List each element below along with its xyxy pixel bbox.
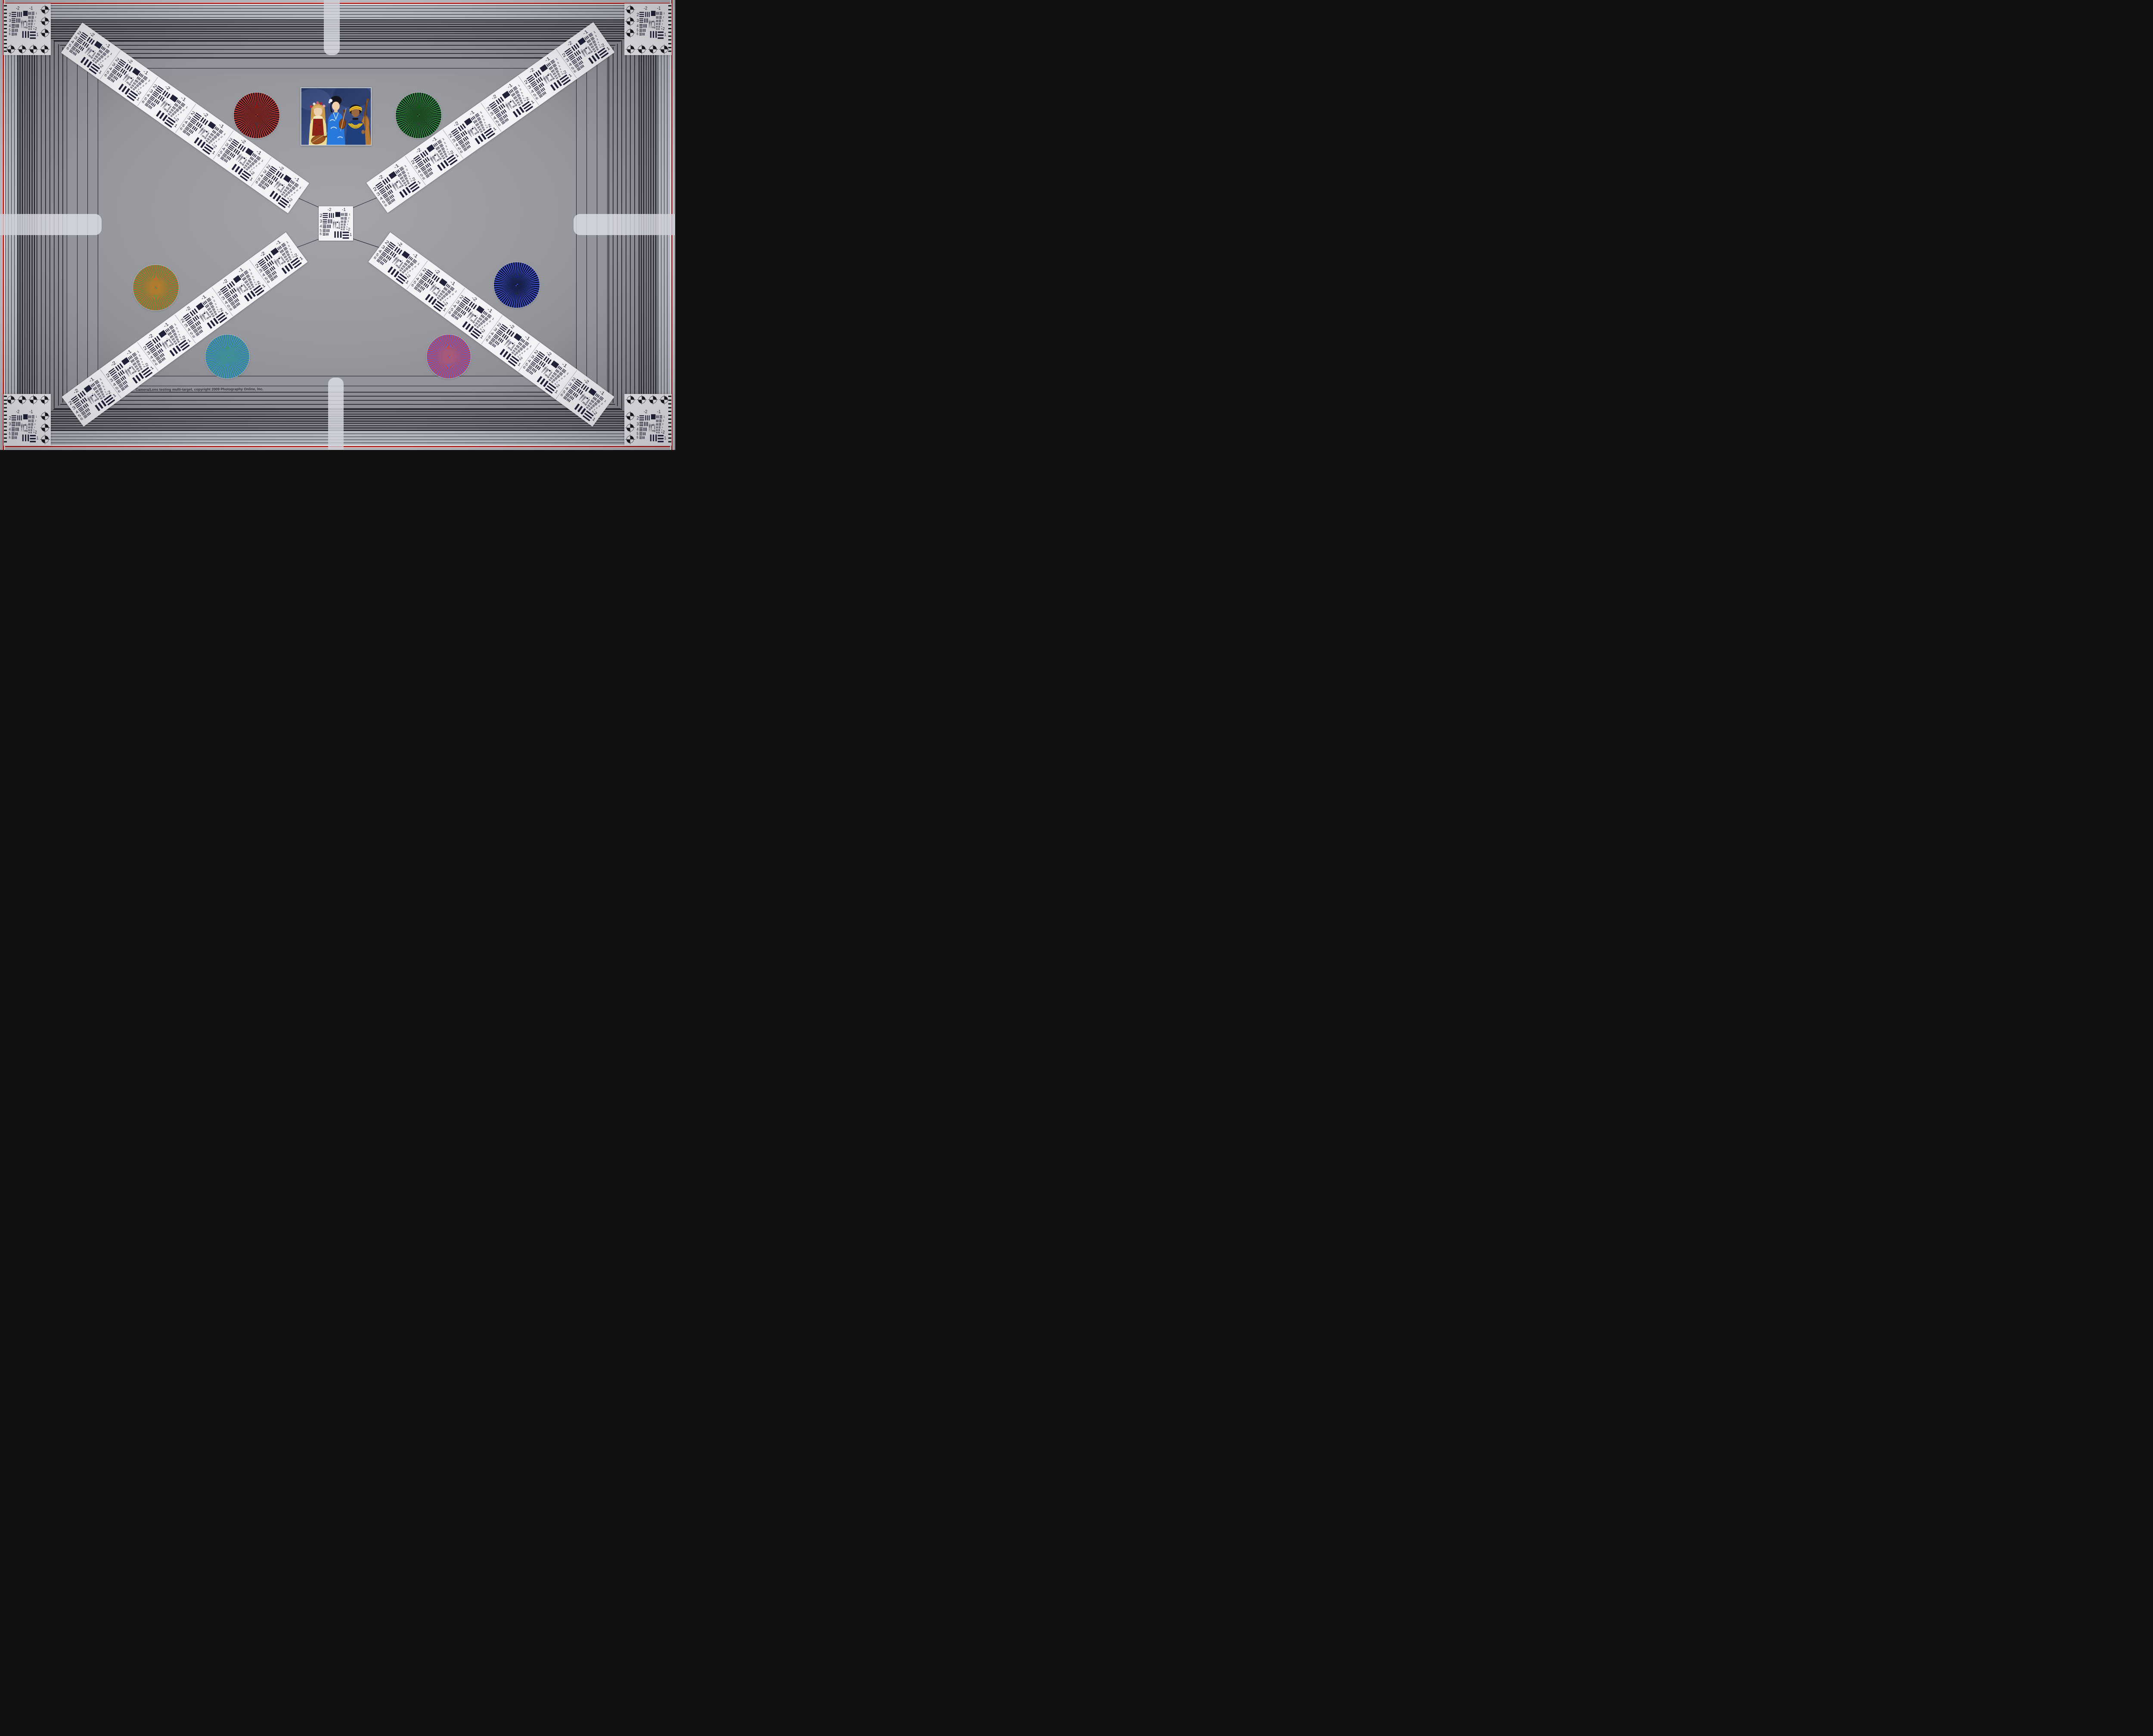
usaf-resolution-chart: -2-12345612345601-21: [636, 5, 667, 40]
svg-text:3: 3: [320, 219, 323, 224]
svg-text:0: 0: [649, 19, 650, 21]
svg-text:1: 1: [396, 179, 398, 181]
svg-text:2: 2: [9, 415, 11, 421]
svg-text:2: 2: [481, 115, 484, 118]
musicians-photo: [301, 87, 372, 146]
svg-text:3: 3: [102, 385, 105, 388]
svg-text:3: 3: [523, 350, 526, 353]
starburst-wheel-red-black: [234, 93, 279, 138]
svg-text:0: 0: [161, 341, 163, 343]
svg-text:0: 0: [583, 393, 585, 395]
svg-text:0: 0: [279, 180, 280, 182]
svg-text:1: 1: [173, 123, 178, 129]
svg-text:6: 6: [485, 338, 489, 342]
svg-text:2: 2: [257, 162, 261, 166]
svg-text:4: 4: [446, 149, 449, 151]
svg-text:6: 6: [229, 307, 233, 312]
svg-text:4: 4: [521, 95, 524, 97]
svg-text:1: 1: [517, 84, 521, 88]
svg-text:1: 1: [109, 52, 113, 56]
quadrant-circle-icon: [659, 44, 669, 54]
svg-text:2: 2: [106, 55, 109, 59]
svg-text:-1: -1: [486, 307, 493, 314]
svg-text:-1: -1: [657, 6, 661, 11]
svg-text:6: 6: [410, 283, 414, 288]
svg-text:6: 6: [636, 32, 638, 36]
quadrant-circle-icon: [6, 395, 16, 405]
svg-text:-2: -2: [661, 27, 665, 31]
svg-text:0: 0: [124, 369, 126, 370]
quadrant-circle-icon: [40, 28, 50, 38]
svg-text:0: 0: [203, 127, 205, 128]
svg-text:-2: -2: [109, 360, 117, 367]
usaf-resolution-chart: -2-12345612345601-21: [8, 5, 39, 40]
svg-text:0: 0: [199, 314, 201, 316]
svg-text:1: 1: [136, 350, 140, 354]
svg-text:-2: -2: [34, 27, 37, 31]
quadrant-circle-icon: [40, 411, 50, 421]
svg-text:1: 1: [664, 416, 665, 418]
camera-lens-test-chart: -2-12345612345601-21 -2-12345612345601-2…: [0, 0, 675, 450]
quadrant-circle-icon: [40, 395, 50, 405]
svg-text:-1: -1: [88, 376, 95, 383]
quadrant-circle-icon: [40, 5, 50, 15]
svg-text:-2: -2: [545, 350, 552, 357]
svg-text:6: 6: [559, 393, 564, 397]
svg-text:6: 6: [459, 149, 464, 154]
svg-text:0: 0: [649, 422, 650, 424]
svg-text:-1: -1: [255, 149, 263, 156]
quadrant-circle-icon: [637, 44, 647, 54]
svg-text:1: 1: [664, 436, 667, 440]
quadrant-circle-icon: [625, 28, 635, 38]
svg-text:2: 2: [444, 142, 447, 145]
svg-text:3: 3: [347, 220, 349, 223]
corner-target-top-right: -2-12345612345601-21: [624, 3, 672, 55]
starburst-wheel-green-black: [396, 93, 441, 138]
svg-text:-1: -1: [104, 42, 112, 49]
svg-text:0: 0: [241, 153, 242, 155]
svg-text:-1: -1: [293, 176, 301, 183]
svg-text:3: 3: [486, 322, 489, 326]
svg-text:4: 4: [253, 279, 255, 281]
svg-text:-1: -1: [468, 109, 475, 116]
svg-text:1: 1: [479, 111, 483, 115]
svg-text:6: 6: [103, 73, 108, 77]
svg-text:1: 1: [211, 150, 216, 155]
svg-text:-2: -2: [16, 6, 20, 11]
svg-text:4: 4: [347, 223, 348, 226]
svg-text:2: 2: [451, 293, 454, 296]
svg-text:0: 0: [22, 422, 22, 424]
svg-text:1: 1: [529, 344, 532, 348]
svg-text:-2: -2: [566, 40, 573, 47]
quadrant-circle-icon: [40, 44, 50, 54]
svg-text:1: 1: [591, 417, 596, 422]
starburst-wheel-red-blue: [427, 335, 471, 378]
svg-text:1: 1: [547, 72, 549, 74]
svg-text:1: 1: [26, 19, 27, 21]
svg-text:6: 6: [320, 232, 322, 236]
svg-text:1: 1: [285, 240, 289, 244]
svg-text:2: 2: [563, 375, 566, 378]
svg-text:1: 1: [434, 152, 436, 154]
svg-text:2: 2: [175, 327, 178, 330]
svg-text:1: 1: [417, 262, 420, 266]
svg-text:6: 6: [217, 153, 221, 158]
quadrant-circle-icon: [17, 44, 27, 54]
svg-text:1: 1: [166, 338, 168, 340]
svg-text:1: 1: [132, 77, 134, 78]
svg-text:3: 3: [142, 84, 145, 88]
svg-text:6: 6: [373, 255, 377, 260]
svg-text:1: 1: [472, 126, 474, 127]
svg-text:0: 0: [505, 102, 506, 104]
svg-text:1: 1: [516, 362, 521, 367]
svg-text:-2: -2: [88, 31, 96, 38]
quadrant-circle-icon: [625, 423, 635, 433]
svg-text:1: 1: [94, 50, 96, 52]
svg-text:2: 2: [35, 420, 36, 422]
svg-text:4: 4: [9, 427, 11, 431]
svg-text:1: 1: [403, 164, 407, 168]
svg-text:-2: -2: [433, 268, 441, 275]
svg-text:1: 1: [442, 307, 447, 313]
svg-text:0: 0: [472, 311, 473, 313]
svg-text:-2: -2: [221, 278, 229, 285]
svg-text:1: 1: [147, 79, 151, 83]
svg-text:-2: -2: [490, 93, 497, 101]
svg-text:0: 0: [273, 259, 275, 261]
svg-text:0: 0: [87, 396, 89, 398]
svg-text:6: 6: [535, 96, 539, 101]
svg-text:1: 1: [551, 369, 552, 371]
svg-text:2: 2: [406, 168, 409, 172]
svg-text:2: 2: [414, 265, 417, 269]
svg-text:6: 6: [636, 435, 638, 440]
svg-text:-2: -2: [644, 6, 648, 11]
svg-text:1: 1: [261, 159, 264, 163]
svg-text:1: 1: [174, 322, 177, 326]
svg-text:1: 1: [588, 397, 590, 398]
svg-text:1: 1: [402, 260, 403, 261]
svg-text:3: 3: [596, 38, 599, 41]
svg-text:0: 0: [334, 220, 335, 222]
svg-text:1: 1: [654, 19, 655, 21]
svg-text:1: 1: [129, 365, 131, 367]
svg-text:3: 3: [560, 377, 563, 381]
registration-marks-row: [626, 395, 669, 405]
svg-text:3: 3: [104, 58, 107, 61]
alignment-bar-bottom: [328, 378, 344, 450]
registration-marks-column: [625, 5, 635, 38]
svg-text:4: 4: [636, 427, 639, 431]
svg-text:2: 2: [182, 108, 185, 112]
svg-text:1: 1: [514, 342, 515, 344]
quadrant-circle-icon: [648, 44, 658, 54]
svg-text:-1: -1: [125, 349, 133, 356]
svg-text:2: 2: [636, 415, 639, 421]
svg-text:1: 1: [349, 214, 351, 216]
svg-text:6: 6: [266, 279, 270, 284]
svg-text:-2: -2: [328, 208, 332, 212]
svg-text:0: 0: [236, 287, 238, 288]
svg-text:6: 6: [9, 32, 10, 36]
svg-text:1: 1: [664, 12, 665, 15]
svg-text:6: 6: [9, 435, 10, 440]
svg-text:6: 6: [497, 123, 501, 127]
svg-text:6: 6: [154, 362, 158, 366]
quadrant-circle-icon: [40, 16, 50, 26]
svg-text:4: 4: [597, 41, 600, 44]
svg-text:3: 3: [662, 423, 664, 426]
corner-target-bottom-right: -2-12345612345601-21: [624, 394, 672, 446]
svg-text:1: 1: [92, 393, 93, 394]
svg-text:0: 0: [90, 46, 91, 48]
svg-text:4: 4: [320, 224, 322, 228]
svg-text:1: 1: [476, 314, 478, 316]
svg-text:1: 1: [37, 436, 39, 440]
svg-text:1: 1: [441, 137, 445, 141]
svg-text:0: 0: [165, 100, 167, 102]
svg-text:6: 6: [522, 365, 526, 370]
svg-text:1: 1: [555, 57, 558, 61]
svg-text:1: 1: [510, 99, 512, 101]
alignment-bar-left: [0, 214, 102, 235]
svg-text:6: 6: [65, 46, 70, 51]
svg-text:1: 1: [479, 335, 484, 340]
svg-text:3: 3: [662, 20, 664, 22]
svg-text:2: 2: [9, 12, 11, 18]
svg-text:1: 1: [135, 96, 140, 102]
svg-text:2: 2: [348, 217, 350, 220]
svg-text:1: 1: [439, 287, 441, 289]
svg-text:4: 4: [662, 23, 663, 25]
svg-text:1: 1: [185, 105, 189, 109]
svg-text:6: 6: [179, 127, 183, 131]
svg-text:-1: -1: [412, 252, 419, 259]
svg-text:-2: -2: [528, 67, 535, 74]
svg-text:2: 2: [663, 420, 664, 422]
svg-text:1: 1: [454, 289, 457, 293]
svg-text:4: 4: [662, 426, 663, 428]
svg-text:3: 3: [179, 111, 182, 115]
svg-text:-1: -1: [598, 389, 605, 396]
svg-text:6: 6: [192, 335, 196, 339]
svg-text:6: 6: [141, 99, 145, 104]
svg-text:-2: -2: [239, 137, 247, 145]
svg-text:4: 4: [215, 306, 218, 309]
svg-text:4: 4: [34, 23, 35, 25]
svg-text:-2: -2: [347, 227, 350, 231]
svg-text:-2: -2: [202, 111, 209, 118]
svg-text:4: 4: [559, 68, 562, 71]
svg-text:4: 4: [484, 122, 486, 124]
starburst-wheel-green-blue: [205, 335, 249, 378]
svg-text:-2: -2: [164, 84, 171, 91]
svg-text:2: 2: [663, 16, 664, 19]
svg-text:-1: -1: [342, 208, 346, 212]
svg-text:-2: -2: [184, 305, 192, 313]
svg-text:1: 1: [241, 283, 242, 285]
quadrant-circle-icon: [40, 423, 50, 433]
svg-text:1: 1: [338, 220, 339, 222]
svg-text:2: 2: [213, 300, 216, 303]
svg-text:-2: -2: [126, 57, 133, 65]
svg-text:6: 6: [422, 176, 426, 181]
quadrant-circle-icon: [6, 44, 16, 54]
svg-text:-1: -1: [162, 321, 170, 329]
svg-text:-1: -1: [180, 95, 187, 102]
svg-text:2: 2: [519, 88, 522, 92]
svg-text:1: 1: [245, 157, 247, 158]
quadrant-circle-icon: [637, 395, 647, 405]
svg-text:0: 0: [467, 129, 469, 131]
svg-text:1: 1: [283, 183, 285, 185]
svg-text:-1: -1: [142, 68, 149, 76]
registration-marks-column: [40, 411, 50, 444]
svg-text:-2: -2: [16, 409, 20, 415]
svg-text:2: 2: [144, 82, 147, 85]
svg-text:4: 4: [103, 388, 106, 391]
svg-text:3: 3: [407, 172, 410, 175]
svg-text:3: 3: [289, 248, 292, 251]
svg-text:1: 1: [585, 46, 587, 47]
svg-text:1: 1: [36, 12, 37, 15]
svg-text:2: 2: [600, 402, 603, 406]
svg-text:2: 2: [35, 16, 36, 19]
svg-text:3: 3: [558, 65, 561, 68]
svg-text:-2: -2: [259, 251, 266, 258]
svg-text:2: 2: [636, 12, 639, 18]
svg-text:1: 1: [286, 203, 292, 209]
svg-text:6: 6: [117, 389, 121, 394]
svg-text:0: 0: [509, 338, 511, 340]
registration-marks-column: [625, 411, 635, 444]
svg-text:1: 1: [278, 256, 280, 257]
svg-text:4: 4: [178, 334, 181, 336]
quadrant-circle-icon: [625, 411, 635, 421]
alignment-bar-right: [574, 214, 675, 235]
starburst-wheel-red-green: [133, 265, 179, 310]
corner-target-top-left: -2-12345612345601-21: [3, 3, 51, 55]
quadrant-circle-icon: [625, 434, 635, 444]
quadrant-circle-icon: [625, 16, 635, 26]
svg-text:3: 3: [255, 164, 258, 168]
svg-text:-1: -1: [524, 334, 531, 341]
svg-text:0: 0: [543, 76, 544, 77]
svg-text:1: 1: [603, 399, 607, 403]
quadrant-circle-icon: [17, 395, 27, 405]
svg-text:-1: -1: [561, 361, 568, 369]
svg-text:1: 1: [654, 422, 655, 424]
svg-text:2: 2: [138, 354, 141, 358]
quadrant-circle-icon: [28, 395, 38, 405]
svg-text:-1: -1: [544, 56, 551, 63]
svg-text:2: 2: [595, 35, 598, 38]
svg-text:3: 3: [217, 138, 220, 141]
svg-text:3: 3: [34, 423, 36, 426]
svg-text:3: 3: [9, 422, 11, 427]
svg-text:3: 3: [177, 330, 180, 334]
svg-text:1: 1: [204, 310, 205, 312]
svg-text:3: 3: [448, 295, 451, 298]
starburst-wheel-blue-black: [494, 262, 540, 308]
svg-text:0: 0: [434, 284, 436, 285]
svg-text:3: 3: [251, 276, 254, 279]
svg-text:4: 4: [408, 175, 411, 178]
quadrant-circle-icon: [28, 44, 38, 54]
svg-text:0: 0: [127, 73, 129, 75]
svg-text:-1: -1: [431, 136, 438, 143]
center-resolution-chart: -2-12345612345601-21: [319, 206, 353, 241]
svg-text:1: 1: [211, 295, 214, 299]
svg-text:2: 2: [250, 272, 253, 276]
svg-text:3: 3: [636, 19, 639, 24]
svg-text:-2: -2: [34, 430, 37, 435]
svg-text:3: 3: [482, 118, 485, 122]
svg-text:-2: -2: [471, 295, 478, 303]
svg-text:3: 3: [293, 191, 296, 195]
svg-text:3: 3: [597, 405, 600, 408]
quadrant-circle-icon: [648, 395, 658, 405]
svg-text:-1: -1: [582, 29, 589, 36]
svg-text:-2: -2: [72, 387, 80, 395]
corner-target-bottom-left: -2-12345612345601-21: [3, 394, 51, 446]
quadrant-circle-icon: [40, 434, 50, 444]
svg-text:3: 3: [214, 303, 217, 306]
svg-text:1: 1: [99, 377, 102, 381]
svg-text:6: 6: [447, 310, 452, 315]
svg-text:0: 0: [391, 183, 393, 184]
quadrant-circle-icon: [626, 44, 636, 54]
svg-text:-2: -2: [147, 333, 154, 340]
svg-text:1: 1: [350, 232, 352, 237]
svg-text:0: 0: [22, 19, 22, 21]
svg-text:1: 1: [37, 32, 39, 37]
svg-text:2: 2: [287, 245, 290, 248]
svg-text:2: 2: [557, 62, 560, 65]
svg-text:1: 1: [26, 422, 27, 424]
svg-text:4: 4: [141, 361, 143, 363]
usaf-resolution-chart: -2-12345612345601-21: [636, 409, 667, 444]
svg-text:-2: -2: [453, 120, 460, 127]
quadrant-circle-icon: [626, 395, 636, 405]
svg-text:-2: -2: [508, 322, 515, 330]
svg-text:2: 2: [488, 320, 491, 323]
svg-text:3: 3: [34, 20, 36, 22]
registration-marks-row: [626, 44, 669, 54]
svg-text:6: 6: [573, 69, 577, 74]
svg-text:2: 2: [220, 136, 223, 139]
svg-text:-2: -2: [277, 164, 285, 172]
svg-text:1: 1: [664, 32, 667, 37]
svg-text:1: 1: [208, 130, 209, 132]
svg-text:1: 1: [298, 186, 302, 189]
svg-text:1: 1: [248, 268, 251, 272]
svg-text:4: 4: [34, 426, 35, 428]
svg-text:1: 1: [554, 389, 559, 395]
svg-text:-1: -1: [393, 163, 400, 170]
svg-text:-1: -1: [274, 239, 282, 246]
svg-text:1: 1: [404, 279, 410, 285]
svg-text:1: 1: [223, 132, 226, 136]
svg-text:2: 2: [526, 347, 529, 351]
alignment-bar-top: [324, 0, 340, 55]
svg-text:-1: -1: [29, 6, 33, 11]
svg-text:3: 3: [140, 358, 143, 361]
svg-text:-1: -1: [449, 279, 456, 286]
